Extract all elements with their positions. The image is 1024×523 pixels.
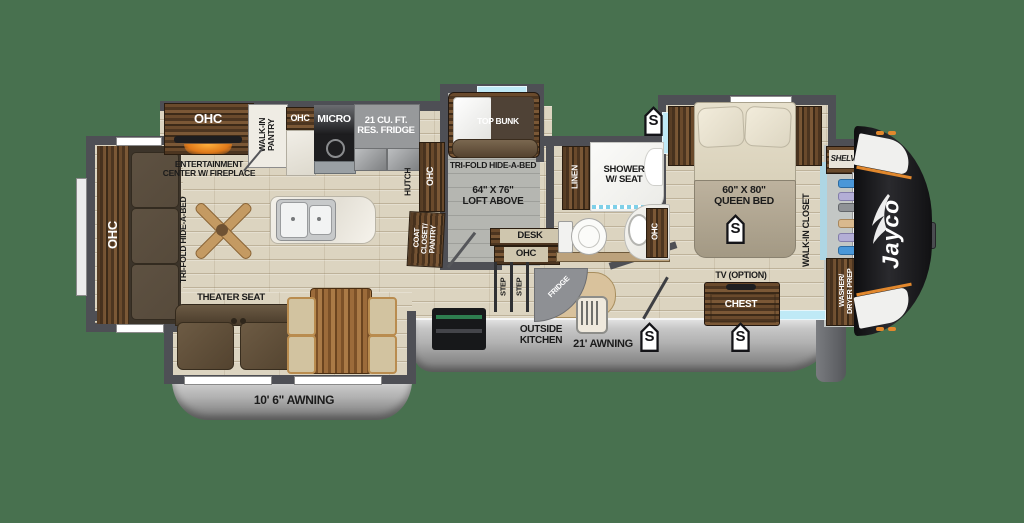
step-edge xyxy=(526,262,529,312)
dinette-chair xyxy=(287,335,316,374)
walk-in-closet-label: WALK-IN CLOSET xyxy=(798,180,816,280)
queen-bed-label: 60" X 80" QUEEN BED xyxy=(694,182,794,210)
pillow xyxy=(697,106,745,148)
vanity-ohc-label: OHC xyxy=(646,208,666,256)
marker-light xyxy=(888,131,896,135)
toilet-bowl-inner xyxy=(578,225,600,248)
range-front xyxy=(314,161,356,174)
theater-seat-cushion xyxy=(177,322,234,370)
bunk-trifold-label: TRI-FOLD HIDE-A-BED xyxy=(444,160,542,172)
sink-drain xyxy=(317,217,321,221)
dinette-chair xyxy=(368,297,397,336)
sofa-cushion xyxy=(131,264,179,320)
rear-ohc-label: OHC xyxy=(97,146,129,324)
storage-bay xyxy=(816,320,846,382)
dinette-chair xyxy=(368,335,397,374)
closet-mirror xyxy=(820,162,827,260)
coat-closet-label: COAT CLOSET/ PANTRY xyxy=(407,211,444,266)
cupholder xyxy=(231,318,237,324)
hutch-label: HUTCH xyxy=(400,158,416,206)
outside-kitchen-label: OUTSIDE KITCHEN xyxy=(510,324,572,348)
loft-label: 64" X 76" LOFT ABOVE xyxy=(444,184,542,210)
wall xyxy=(407,311,416,383)
jayco-logo: Jayco xyxy=(874,178,908,290)
chest-label: CHEST xyxy=(704,292,778,318)
chest-handle xyxy=(726,284,756,290)
burner-icon xyxy=(326,139,345,158)
bunk-sofa-back xyxy=(452,139,538,158)
cupholder xyxy=(240,318,246,324)
pillow xyxy=(744,106,792,148)
window xyxy=(778,310,826,320)
window xyxy=(76,178,87,296)
outside-griddle-grate xyxy=(581,301,599,325)
speaker-badge: S xyxy=(640,322,659,353)
sink-drain xyxy=(291,217,295,221)
nightstand xyxy=(792,106,822,166)
marker-light xyxy=(876,327,884,331)
dinette-chair xyxy=(287,297,316,336)
window xyxy=(116,137,162,146)
hutch-ohc-label: OHC xyxy=(419,142,443,210)
fireplace-glow xyxy=(184,144,232,154)
wall xyxy=(86,136,95,332)
entertainment-ohc-label: OHC xyxy=(164,106,252,132)
floorplan-canvas: OHC TRI-FOLD HIDE-A-BED OHC ENTERTAINMEN… xyxy=(0,0,1024,523)
top-bunk-label: TOP BUNK xyxy=(460,116,536,128)
speaker-badge: S xyxy=(731,322,750,353)
fridge-door xyxy=(354,148,387,171)
outside-kitchen-shelf xyxy=(436,315,482,319)
residential-fridge-label: 21 CU. FT. RES. FRIDGE xyxy=(352,104,420,148)
speaker-badge: S xyxy=(644,106,663,137)
awning-21-label: 21' AWNING xyxy=(568,338,638,352)
tv-strip xyxy=(174,136,242,143)
ceiling-fan-hub xyxy=(216,224,228,236)
microwave-label: MICRO xyxy=(314,105,354,135)
marker-light xyxy=(888,327,896,331)
outside-kitchen-shelf xyxy=(436,329,482,333)
kitchen-ohc-label: OHC xyxy=(286,107,314,130)
theater-seat-label: THEATER SEAT xyxy=(188,292,274,304)
kitchen-counter xyxy=(286,130,316,176)
window xyxy=(294,376,382,385)
awning-106-label: 10' 6" AWNING xyxy=(238,392,350,408)
window xyxy=(116,324,164,333)
dinette-table xyxy=(310,288,372,374)
linen-label: LINEN xyxy=(562,146,588,208)
marker-light xyxy=(876,131,884,135)
tv-option-label: TV (OPTION) xyxy=(704,270,778,282)
sofa-cushion xyxy=(131,208,179,264)
desk-label: DESK xyxy=(500,229,560,243)
desk-ohc-label: OHC xyxy=(504,247,548,262)
window xyxy=(184,376,272,385)
shower-label: SHOWER W/ SEAT xyxy=(594,162,654,188)
step-label: STEP xyxy=(513,264,526,310)
tri-fold-label: TRI-FOLD HIDE-A-BED xyxy=(175,178,192,302)
speaker-badge: S xyxy=(726,214,745,245)
step-label: STEP xyxy=(497,264,510,310)
